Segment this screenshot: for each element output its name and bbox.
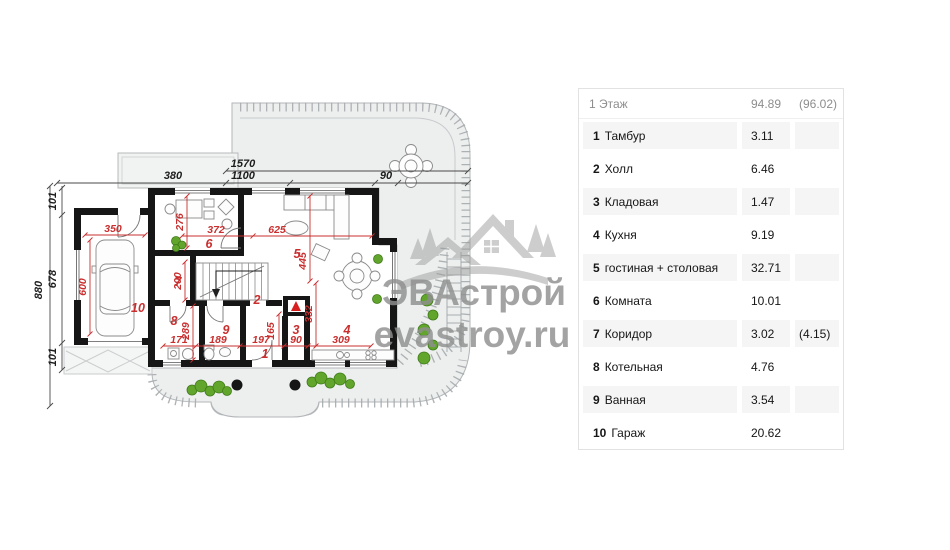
table-row: 2Холл 6.46 [579,152,843,185]
table-row: 4Кухня 9.19 [579,218,843,251]
room-area-alt [795,188,839,215]
floor-area-total: 94.89 [742,90,790,117]
dim-right-width: 90 [380,170,393,182]
room-9: 9 [223,323,230,337]
floor-area-total-alt: (96.02) [795,90,839,117]
table-row: 10Гараж 20.62 [579,416,843,449]
dim-inner-width: 1100 [231,170,256,182]
table-row: 5гостиная + столовая 32.71 [579,251,843,284]
room-number: 2 [593,162,600,176]
room-label: Холл [605,162,633,176]
table-header: 1 Этаж 94.89 (96.02) [579,89,843,119]
room-area-alt [795,353,839,380]
room-7: 7 [175,275,183,289]
dim-total-width: 1570 [231,158,256,170]
room-label: Кладовая [605,195,659,209]
room-number: 4 [593,228,600,242]
floor-title: 1 Этаж [583,90,737,117]
table-row: 3Кладовая 1.47 [579,185,843,218]
room-area: 6.46 [742,155,790,182]
room-label: Котельная [605,360,663,374]
room-area: 3.02 [742,320,790,347]
room-area-alt [795,287,839,314]
room-6: 6 [206,237,214,251]
room-area-alt: (4.15) [795,320,839,347]
room-8: 8 [171,314,178,328]
room-area-alt [795,221,839,248]
room-number: 8 [593,360,600,374]
watermark-site: evastroy.ru [374,314,571,355]
room-area-alt [795,122,839,149]
dim-kitchen-h: 332 [303,305,315,323]
room-area: 4.76 [742,353,790,380]
dim-total-height: 880 [33,280,45,299]
room-1: 1 [262,347,269,361]
room-label: Тамбур [605,129,646,143]
page: 350 372 625 600 276 445 200 289 171 189 … [0,0,950,550]
porch-column [290,380,301,391]
driveway [64,347,152,374]
table-row: 1Тамбур 3.11 [579,119,843,152]
room-number: 3 [593,195,600,209]
room-area: 3.54 [742,386,790,413]
floor-plan: 350 372 625 600 276 445 200 289 171 189 … [0,0,578,550]
dim-garage-w: 350 [104,223,122,235]
room-number: 10 [593,426,606,440]
room-10: 10 [131,301,145,315]
room-number: 5 [593,261,600,275]
car-icon [92,240,138,336]
dim-bottom-height: 101 [47,348,59,366]
room-4: 4 [343,323,351,337]
room-label: Комната [605,294,652,308]
table-row: 9Ванная 3.54 [579,383,843,416]
dim-garage-h: 600 [77,278,89,296]
room-2: 2 [253,293,261,307]
table-row: 8Котельная 4.76 [579,350,843,383]
room-label: гостиная + столовая [605,261,718,275]
table-row: 6Комната 10.01 [579,284,843,317]
room-label: Гараж [611,426,645,440]
dim-boiler-w: 171 [170,334,188,346]
room-number: 9 [593,393,600,407]
dim-room6-h: 276 [174,213,186,232]
room-area: 20.62 [742,419,790,446]
room-area: 1.47 [742,188,790,215]
room-label: Кухня [605,228,637,242]
room-area-alt [795,386,839,413]
table-row: 7Коридор 3.02 (4.15) [579,317,843,350]
room-area: 3.11 [742,122,790,149]
dim-mid-height: 678 [47,269,59,288]
room-label: Ванная [605,393,646,407]
room-area: 10.01 [742,287,790,314]
room-area: 9.19 [742,221,790,248]
room-area: 32.71 [742,254,790,281]
dining-table-icon [334,253,380,299]
areas-table: 1 Этаж 94.89 (96.02) 1Тамбур 3.11 2Холл … [578,88,844,450]
watermark-brand: ЭВАстрой [382,272,566,313]
room-area-alt [795,155,839,182]
room-5: 5 [294,247,302,261]
room-number: 7 [593,327,600,341]
room-number: 1 [593,129,600,143]
room-area-alt [795,419,839,446]
room-number: 6 [593,294,600,308]
porch-column [232,380,243,391]
dim-living-w: 625 [268,224,286,236]
room-3: 3 [293,323,300,337]
dim-tambour-h: 165 [265,322,277,340]
dim-top-height: 101 [47,192,59,210]
room-area-alt [795,254,839,281]
dim-room6-w: 372 [207,224,225,236]
dim-left-width: 380 [164,170,183,182]
room-label: Коридор [605,327,652,341]
